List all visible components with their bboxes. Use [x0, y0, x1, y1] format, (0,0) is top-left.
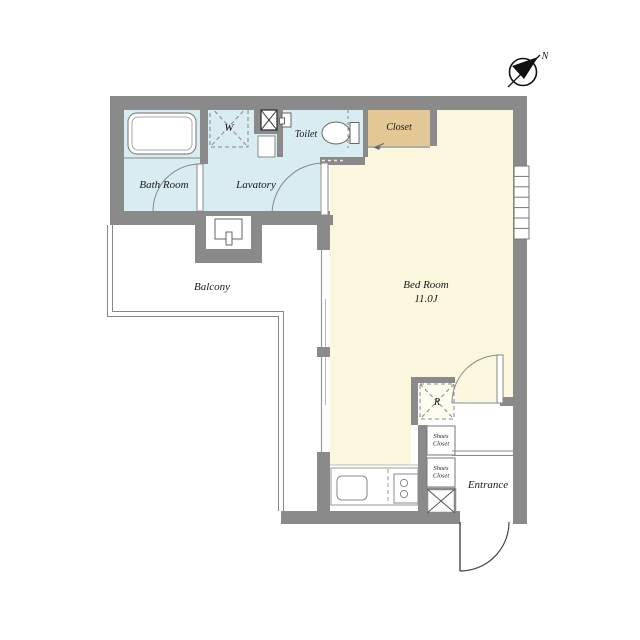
wall-bath-lavatory: [200, 110, 208, 164]
floorplan-drawing: W R: [0, 0, 640, 640]
compass-north-label: N: [541, 51, 550, 62]
wall-top: [110, 96, 527, 110]
window-lower: [317, 357, 330, 452]
window-upper: [317, 250, 330, 347]
kitchen: [330, 465, 418, 511]
wall-fridge-left: [411, 377, 418, 425]
bathtub: [124, 113, 200, 158]
shaft-cabinet: [258, 136, 275, 157]
shoes-closet-lower-label2: Closet: [433, 473, 450, 480]
bedroom-label: Bed Room: [403, 279, 449, 291]
balcony-tap-unit: [206, 216, 251, 249]
bath-room-label: Bath Room: [139, 179, 188, 191]
kitchen-stove: [394, 474, 418, 503]
wall-shoes-strip: [418, 425, 427, 518]
tap-handle: [226, 232, 232, 245]
shoes-closet-upper: Shoes Closet: [427, 426, 455, 455]
shoes-closet-lower: Shoes Closet: [427, 458, 455, 487]
entrance-shaft: [427, 489, 455, 513]
shoes-closet-lower-label: Shoes: [434, 465, 449, 472]
entrance-label: Entrance: [467, 479, 508, 491]
closet-label: Closet: [386, 122, 412, 133]
lavatory-label: Lavatory: [235, 179, 276, 191]
wall-lavatory-bedroom: [320, 215, 333, 225]
shoes-closet-upper-label: Shoes: [434, 433, 449, 440]
right-wall-louver: [514, 166, 529, 239]
balcony-label: Balcony: [194, 281, 230, 293]
balcony-railing: [108, 225, 284, 511]
shoes-closet-upper-label2: Closet: [433, 441, 450, 448]
main-entrance-door: [460, 522, 509, 571]
refrigerator-label: R: [433, 397, 440, 408]
floorplan-page: W R: [0, 0, 640, 640]
bedroom-size-label: 11.0J: [414, 293, 438, 305]
refrigerator-space: R: [420, 384, 454, 419]
toilet-label: Toilet: [295, 129, 318, 140]
compass: N: [508, 51, 550, 87]
entrance-step: [452, 451, 513, 456]
wall-closet-right: [430, 110, 437, 146]
wall-right: [513, 96, 527, 524]
wall-left: [110, 96, 124, 225]
wall-shaft-left: [254, 110, 261, 134]
kitchen-sink: [337, 476, 367, 500]
wall-closet-left: [363, 110, 368, 157]
washer-label: W: [224, 122, 234, 134]
